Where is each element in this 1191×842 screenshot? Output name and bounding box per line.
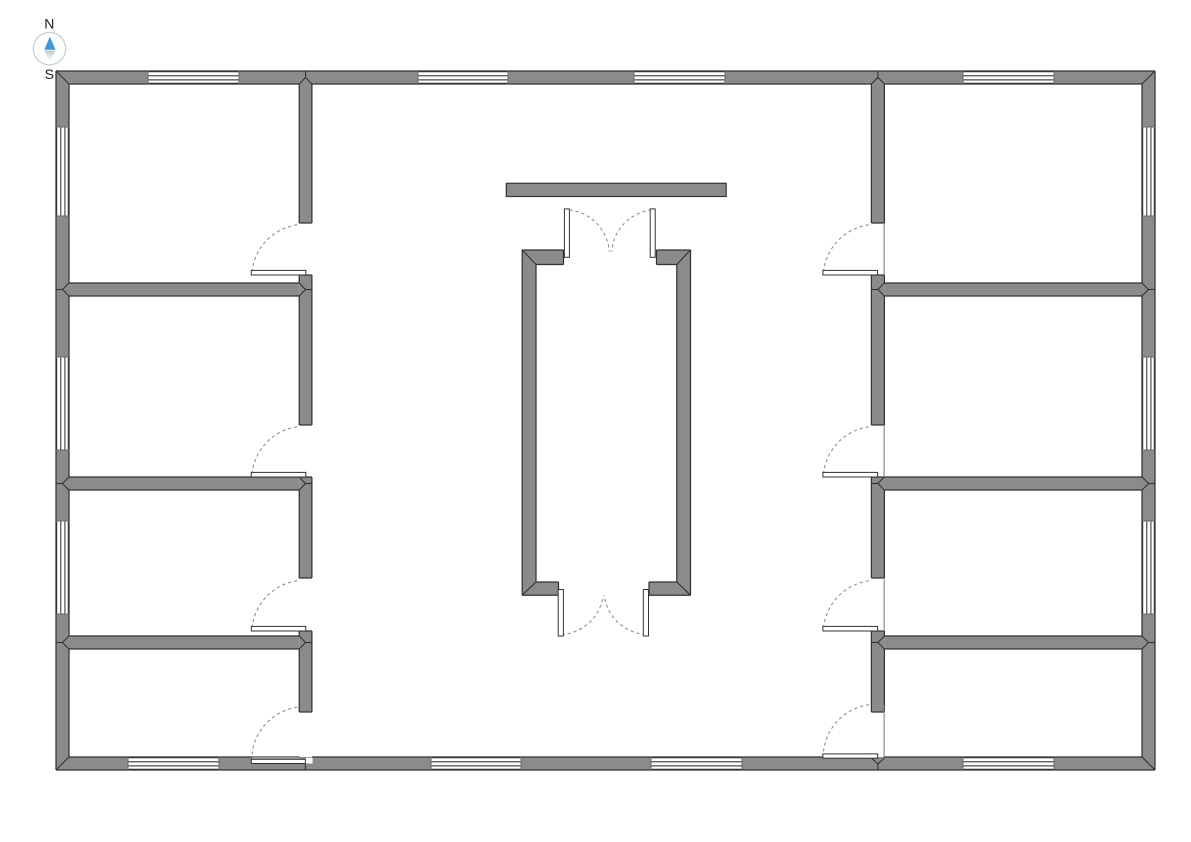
svg-text:N: N	[44, 16, 54, 32]
svg-text:S: S	[45, 66, 54, 82]
